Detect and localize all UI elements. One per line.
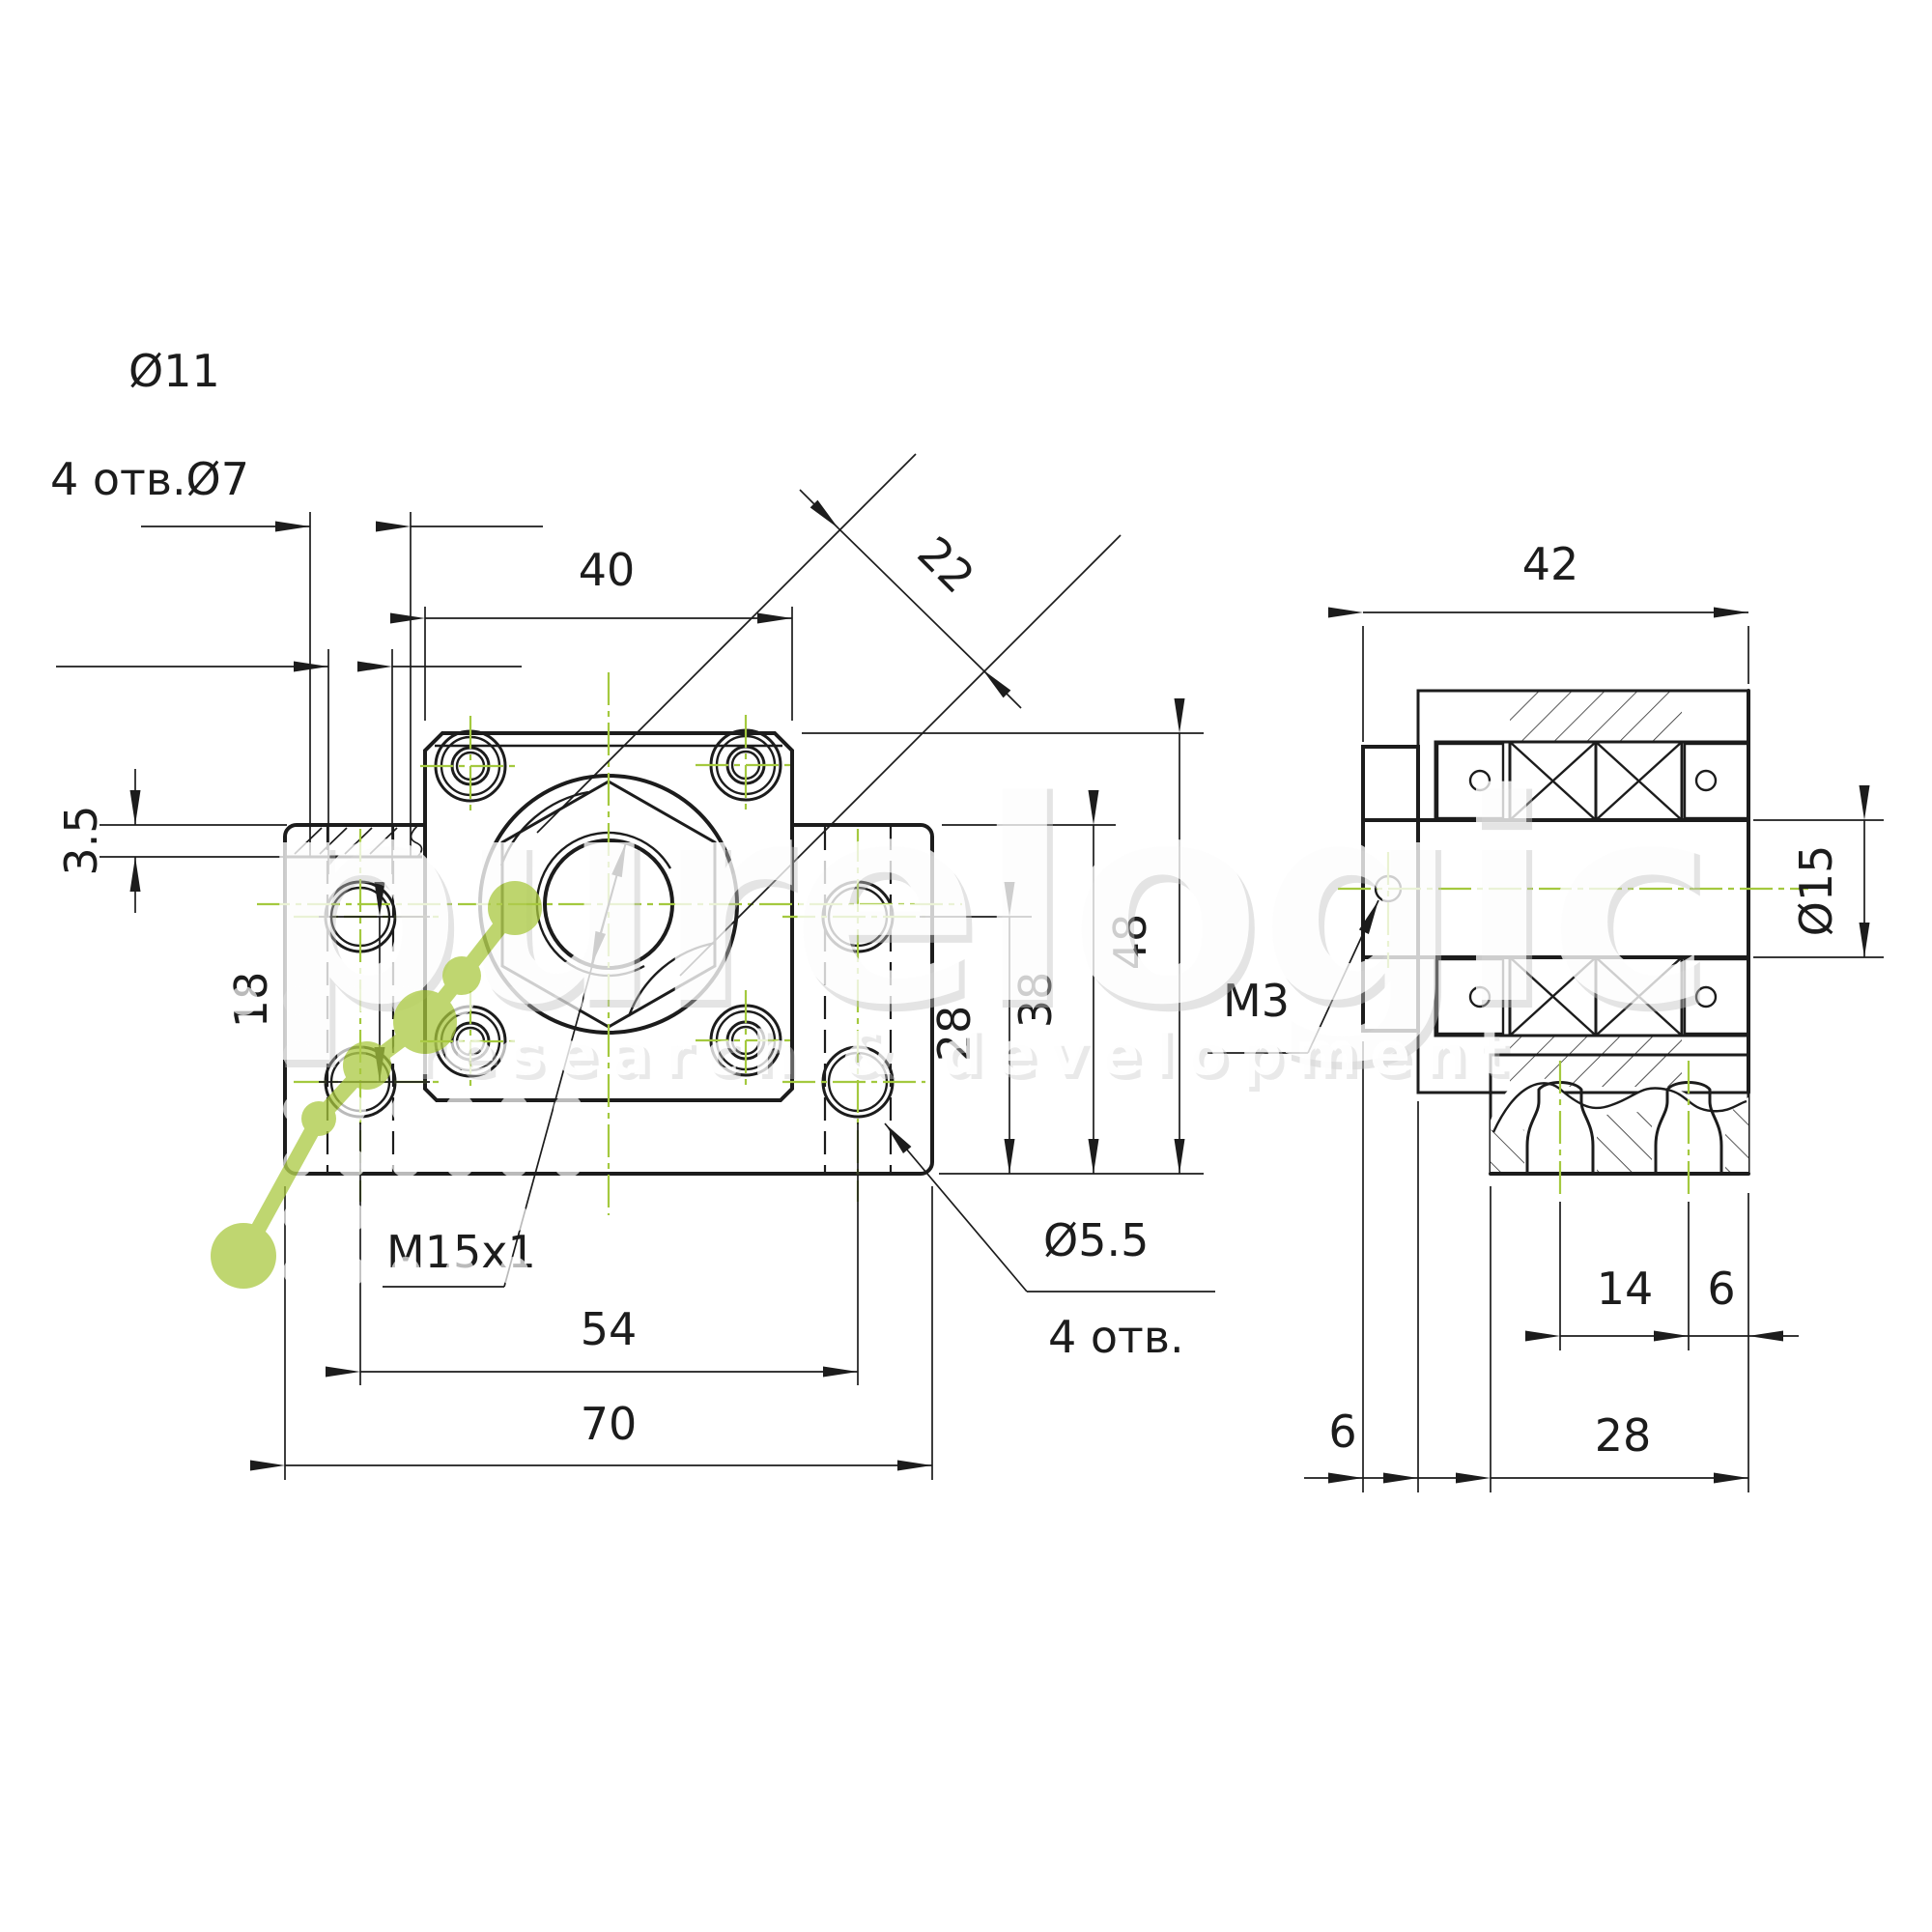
- dim-bore: Ø15: [1753, 820, 1884, 957]
- dim-boss-label: 22: [908, 526, 985, 604]
- dim-mount-holes-label: 4 отв.Ø7: [50, 453, 249, 505]
- drawing-page: Ø11 4 отв.Ø7 40 22: [0, 0, 1932, 1932]
- dim-step-depth-label: 3.5: [55, 805, 107, 875]
- dim-flange-hole-dia-label: Ø5.5: [1043, 1214, 1149, 1266]
- dim-collar6-label: 6: [1328, 1406, 1356, 1458]
- dim-depth-label: 42: [1522, 538, 1579, 590]
- dim-flange-width-label: 40: [579, 544, 636, 596]
- dim-width70-label: 70: [581, 1398, 638, 1450]
- dim-step-depth: 3.5: [55, 769, 287, 913]
- dim-slot14-label: 14: [1597, 1263, 1654, 1315]
- watermark-tagline: research & development: [412, 1018, 1520, 1089]
- dim-slot6-label: 6: [1707, 1263, 1735, 1315]
- dim-width54-label: 54: [581, 1303, 638, 1355]
- dim-flange-hole-qty-label: 4 отв.: [1048, 1311, 1184, 1363]
- drawing-canvas: Ø11 4 отв.Ø7 40 22: [0, 0, 1932, 1932]
- dim-bore-label: Ø15: [1790, 845, 1842, 937]
- dim-flange-holes: Ø5.5 4 отв.: [885, 1123, 1215, 1363]
- dim-body28-label: 28: [1595, 1409, 1652, 1462]
- dim-counterbore-label: Ø11: [128, 345, 220, 397]
- watermark: purelogic purelogic research & developme…: [184, 733, 1712, 1289]
